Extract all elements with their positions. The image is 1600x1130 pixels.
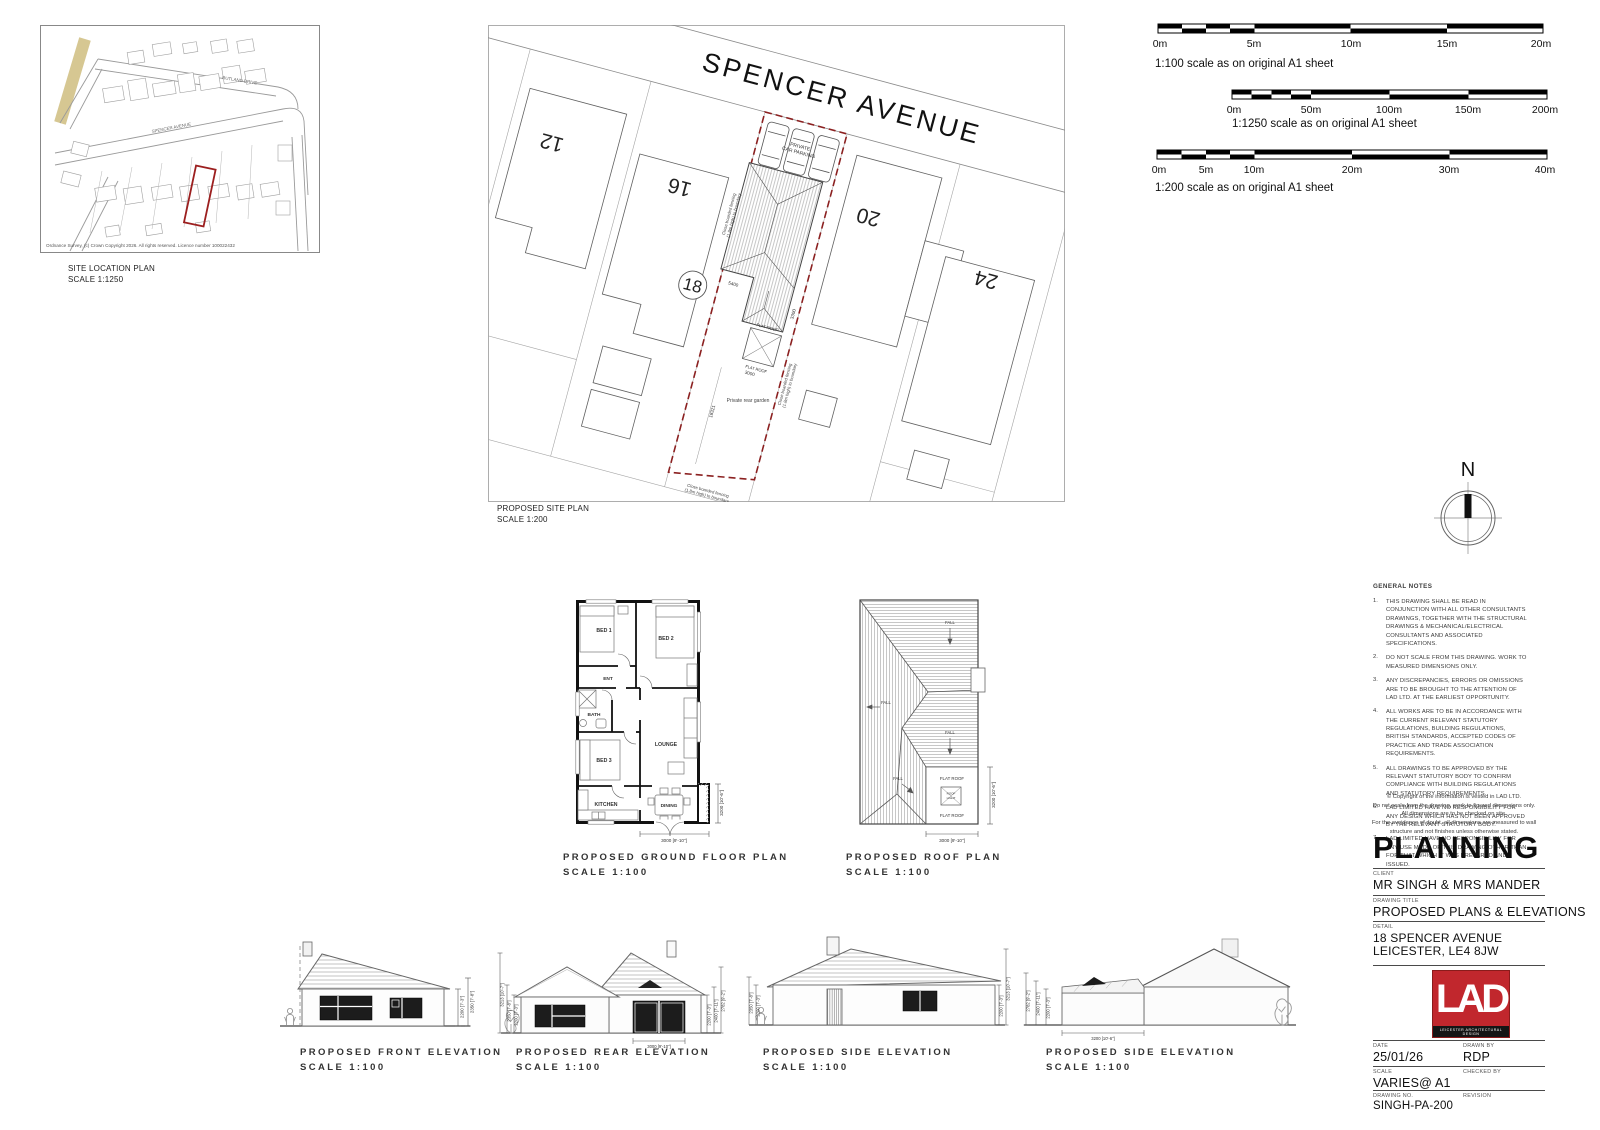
tick: 10m [1341,38,1362,50]
window-2 [390,998,422,1018]
scale-bar-200-cells [1157,150,1547,159]
front-dim-1: 2200 [7'-3"] [460,996,465,1018]
side1-elevation-scale: SCALE 1:100 [763,1060,952,1075]
side2-dim-bottom: 3200 [10'-6"] [1091,1036,1114,1041]
main-roof [595,953,705,995]
rear-elevation-caption: PROPOSED REAR ELEVATION SCALE 1:100 [516,1045,710,1075]
room-dining: DINING [661,803,678,809]
scale-bar-1250-ticks: 0m 50m 100m 150m 200m [1227,104,1559,116]
flat-roof-top [1062,979,1144,993]
title-block-rule [1373,895,1545,896]
side2-dim-l2: 2400 [7'-11"] [1036,992,1041,1015]
fall-label-3: FALL [945,730,955,735]
flat-roof-label-top: FLAT ROOF [940,776,965,781]
site-plan-title: PROPOSED SITE PLAN [497,504,589,515]
date-value: 25/01/26 [1373,1050,1423,1064]
rear-elevation-title: PROPOSED REAR ELEVATION [516,1045,710,1060]
scale-bar-200-label: 1:200 scale as on original A1 sheet [1155,182,1333,194]
roof [298,954,450,989]
copyright-line: All dimensions are to be checked on site… [1356,810,1552,819]
rear-elevation: 3213 [10'-7"] 2350 [7'-8"] 2200 [7'-3"] … [495,933,727,1055]
lad-logo-text: LAD [1433,971,1509,1026]
scale-bar-100-cells [1158,24,1543,33]
front-elevation: 2200 [7'-3"] 2350 [7'-8"] [272,918,477,1043]
note-item: 4. ALL WORKS ARE TO BE IN ACCORDANCE WIT… [1373,708,1529,758]
rear-dim-l2: 2350 [7'-8"] [507,1000,512,1021]
detail-line-2: LEICESTER, LE4 8JW [1373,944,1499,958]
roof-plan: ROOF LIGHT FLAT ROOF FLAT ROOF FALL FALL… [840,582,1000,847]
side2-elevation-scale: SCALE 1:100 [1046,1060,1235,1075]
note-item: 1. THIS DRAWING SHALL BE READ IN CONJUNC… [1373,598,1529,648]
roof [767,949,1001,987]
north-label: N [1461,459,1475,481]
drawn-by-value: RDP [1463,1050,1490,1064]
side2-elevation-caption: PROPOSED SIDE ELEVATION SCALE 1:100 [1046,1045,1235,1075]
front-elevation-scale: SCALE 1:100 [300,1060,502,1075]
main-wall [1144,987,1288,1025]
lad-logo-subtitle: LEICESTER ARCHITECTURAL DESIGN [1433,1026,1509,1037]
revision-label: REVISION [1463,1093,1491,1099]
side-window [903,991,937,1011]
copyright-line: © Copyright of the information is vested… [1356,793,1552,802]
side2-dim-l3: 2200 [7'-3"] [1046,997,1051,1018]
front-elevation-title: PROPOSED FRONT ELEVATION [300,1045,502,1060]
site-location-caption: SITE LOCATION PLAN SCALE 1:1250 [68,264,155,286]
site-plan-scale: SCALE 1:200 [497,515,589,526]
note-item: 2. DO NOT SCALE FROM THIS DRAWING. WORK … [1373,654,1529,671]
note-number: 4. [1373,708,1386,758]
drawn-by-label: DRAWN BY [1463,1043,1494,1049]
roof-plan-dim-right: 3200 [10'-6"] [991,782,996,808]
general-notes-heading: GENERAL NOTES [1373,583,1529,590]
rear-dim-r1: 2200 [7'-3"] [707,1004,712,1025]
tick: 30m [1439,164,1460,176]
tick: 0m [1227,104,1242,116]
side1-elevation-title: PROPOSED SIDE ELEVATION [763,1045,952,1060]
title-block-rule [1373,965,1545,966]
detail-line-1: 18 SPENCER AVENUE [1373,931,1502,945]
tick: 20m [1342,164,1363,176]
rear-dim-r2: 2400 [7'-11"] [714,999,719,1022]
room-bed3: BED 3 [596,758,611,764]
roof-light-label-1: ROOF [947,792,956,796]
tick: 40m [1535,164,1556,176]
tick: 100m [1376,104,1403,116]
scale-bar-1250-label: 1:1250 scale as on original A1 sheet [1232,118,1417,130]
front-dim-2: 2350 [7'-8"] [470,991,475,1013]
note-text: DO NOT SCALE FROM THIS DRAWING. WORK TO … [1386,654,1529,671]
north-arrow: N [1428,452,1508,564]
drawing-title-value: PROPOSED PLANS & ELEVATIONS [1373,905,1586,919]
side-elevation-2: 2782 [9'-2"] 2400 [7'-11"] 2200 [7'-3"] … [1018,923,1303,1043]
side2-dim-l1: 2782 [9'-2"] [1026,990,1031,1011]
date-label: DATE [1373,1043,1388,1049]
flat-roof-area: ROOF LIGHT FLAT ROOF FLAT ROOF [927,768,977,823]
note-number: 3. [1373,677,1386,702]
client-label: CLIENT [1373,871,1394,877]
scale-bar-1250-cells [1232,90,1547,99]
copyright-line: Do not scale from the drawing, work to f… [1356,802,1552,811]
rear-dim-r3: 2782 [9'-2"] [721,990,726,1011]
note-text: ALL WORKS ARE TO BE IN ACCORDANCE WITH T… [1386,708,1529,758]
note-text: ANY DISCREPANCIES, ERRORS OR OMISSIONS A… [1386,677,1529,702]
scale-bar-200-ticks: 0m 5m 10m 20m 30m 40m [1152,164,1556,176]
scale-bar-100: 0m 5m 10m 15m 20m [1148,20,1553,54]
tick: 10m [1244,164,1265,176]
lad-logo: LAD LEICESTER ARCHITECTURAL DESIGN [1432,970,1510,1038]
client-value: MR SINGH & MRS MANDER [1373,878,1540,892]
site-location-map: SPENCER AVENUE RUTLAND DRIVE Ordnance Su… [40,25,320,253]
new-wall-hatch-side [706,783,709,823]
site-location-title: SITE LOCATION PLAN [68,264,155,275]
note-text: THIS DRAWING SHALL BE READ IN CONJUNCTIO… [1386,598,1529,648]
main-gable-roof [1140,949,1290,987]
chimney [827,937,839,955]
room-ent: ENT [603,676,613,682]
rear-dim-l3: 2200 [7'-3"] [514,1004,519,1025]
scale-bar-1250: 0m 50m 100m 150m 200m [1222,86,1562,120]
planning-drawing-sheet: SPENCER AVENUE RUTLAND DRIVE Ordnance Su… [0,0,1600,1130]
detail-label: DETAIL [1373,924,1393,930]
tick: 50m [1301,104,1322,116]
floor-plan-scale: SCALE 1:100 [563,865,789,880]
drawing-no-label: DRAWING NO. [1373,1093,1413,1099]
note-number: 1. [1373,598,1386,648]
roof-light-label-2: LIGHT [947,796,956,800]
side1-dim-r1: 2200 [7'-3"] [999,995,1004,1016]
gable [515,967,619,997]
ground-floor-plan: BED 1 BED 2 ENT BATH BED 3 LOUNGE KITCHE… [552,582,737,847]
title-block-rule [1373,1066,1545,1067]
roof-plan-title: PROPOSED ROOF PLAN [846,850,1002,865]
drawing-no-value: SINGH-PA-200 [1373,1100,1453,1112]
site-plan-drawing: SPENCER AVENUE 12 [488,25,1065,502]
room-bed2: BED 2 [658,636,673,642]
title-block-rule [1373,1040,1545,1041]
fall-label-1: FALL [945,620,955,625]
louvred-door [827,989,842,1025]
side1-elevation-caption: PROPOSED SIDE ELEVATION SCALE 1:100 [763,1045,952,1075]
rear-window [535,1005,585,1027]
fall-label-4: FALL [893,776,903,781]
scale-value: VARIES@ A1 [1373,1076,1451,1090]
rear-elevation-scale: SCALE 1:100 [516,1060,710,1075]
tick: 20m [1531,38,1552,50]
side2-elevation-title: PROPOSED SIDE ELEVATION [1046,1045,1235,1060]
scale-bar-200: 0m 5m 10m 20m 30m 40m [1147,146,1557,180]
tick: 150m [1455,104,1482,116]
site-location-scale: SCALE 1:1250 [68,275,155,286]
compass-needle [1465,494,1472,518]
tick: 0m [1152,164,1167,176]
note-number: 2. [1373,654,1386,671]
proposed-site-plan: SPENCER AVENUE 12 [488,25,1065,502]
tick: 0m [1153,38,1168,50]
fall-label-2: FALL [881,700,891,705]
garden-label: Private rear garden [727,398,770,404]
roof-plan-dim-bottom: 3000 [9'-10"] [939,838,965,843]
site-location-plan: SPENCER AVENUE RUTLAND DRIVE Ordnance Su… [40,25,320,253]
scale-bar-100-ticks: 0m 5m 10m 15m 20m [1153,38,1552,50]
side-elevation-1: 2350 [7'-8"] 2200 [7'-3"] 2200 [7'-3"] 3… [743,923,1013,1043]
roof-plan-scale: SCALE 1:100 [846,865,1002,880]
drawing-title-label: DRAWING TITLE [1373,898,1419,904]
map-copyright: Ordnance Survey, (c) Crown Copyright 202… [46,243,235,248]
tick: 200m [1532,104,1559,116]
flat-roof-extension [1062,977,1144,1025]
side1-dim-l1: 2350 [7'-8"] [749,992,754,1013]
tick: 5m [1247,38,1262,50]
floor-plan-dim-right: 3200 [10'-6"] [719,790,724,816]
french-doors [633,1001,685,1033]
note-item: 3. ANY DISCREPANCIES, ERRORS OR OMISSION… [1373,677,1529,702]
window-1 [320,996,372,1020]
room-bed1: BED 1 [596,628,611,634]
rear-dim-l1: 3213 [10'-7"] [500,983,505,1006]
tick: 5m [1199,164,1214,176]
side1-dim-l2: 2200 [7'-3"] [756,995,761,1016]
front-elevation-caption: PROPOSED FRONT ELEVATION SCALE 1:100 [300,1045,502,1075]
side1-dim-r2: 3213 [10'-7"] [1006,977,1011,1000]
roof-plan-caption: PROPOSED ROOF PLAN SCALE 1:100 [846,850,1002,880]
chimney [303,942,312,956]
copyright-line: For the avoidance of doubt, all dimensio… [1356,819,1552,828]
scale-label: SCALE [1373,1069,1392,1075]
roof-vent-box [971,668,985,692]
chimney [667,941,676,957]
title-block-rule [1373,868,1545,869]
floor-plan-caption: PROPOSED GROUND FLOOR PLAN SCALE 1:100 [563,850,789,880]
person-figure [285,1008,296,1026]
planning-heading: PLANNING [1373,830,1539,866]
room-kitchen: KITCHEN [594,802,617,808]
scale-bar-100-label: 1:100 scale as on original A1 sheet [1155,58,1333,70]
room-lounge: LOUNGE [655,742,678,748]
tick: 15m [1437,38,1458,50]
floor-plan-title: PROPOSED GROUND FLOOR PLAN [563,850,789,865]
room-bath: BATH [588,712,602,718]
extension-wall [1062,993,1144,1025]
title-block-rule [1373,1090,1545,1091]
site-plan-caption: PROPOSED SITE PLAN SCALE 1:200 [497,504,589,526]
floor-plan-dim-bottom: 3000 [9'-10"] [661,838,687,843]
title-block-rule [1373,921,1545,922]
checked-by-label: CHECKED BY [1463,1069,1501,1075]
wall [773,985,995,1025]
flat-roof-label-bottom: FLAT ROOF [940,813,965,818]
